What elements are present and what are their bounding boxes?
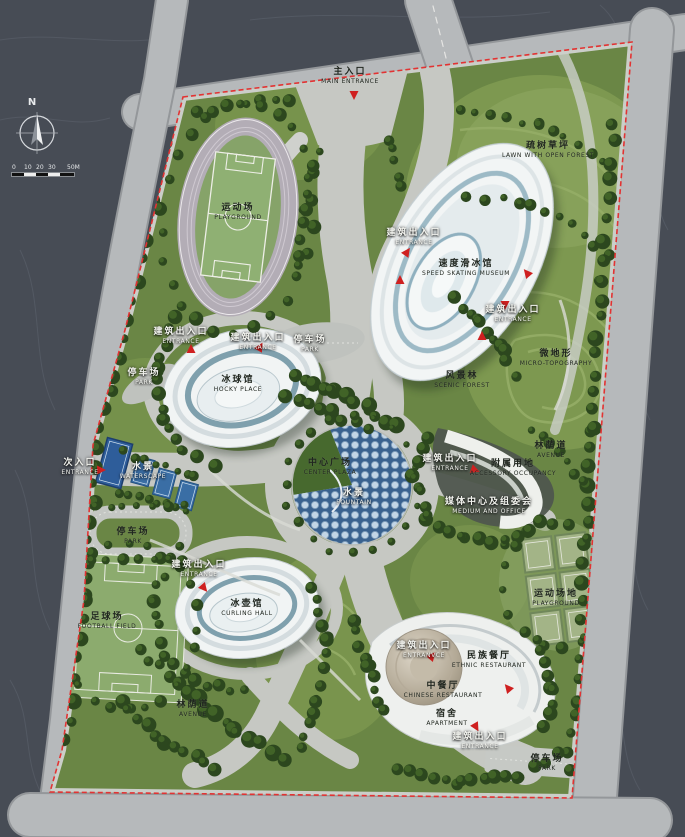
site-plan-canvas: [0, 0, 685, 837]
scale-bar-rule: [12, 173, 74, 176]
scale-tick: 50M: [67, 164, 80, 171]
scale-tick: 30: [48, 164, 56, 171]
scale-bar-ticks: 010203050M: [12, 164, 90, 172]
scale-bar: 010203050M: [12, 164, 90, 180]
scale-tick: 10: [24, 164, 32, 171]
center-plaza: [292, 425, 412, 545]
site-plan: N 010203050M 主入口MAIN ENTRANCE运动场PLAYGROU…: [0, 0, 685, 837]
scale-tick: 20: [36, 164, 44, 171]
scale-tick: 0: [12, 164, 16, 171]
